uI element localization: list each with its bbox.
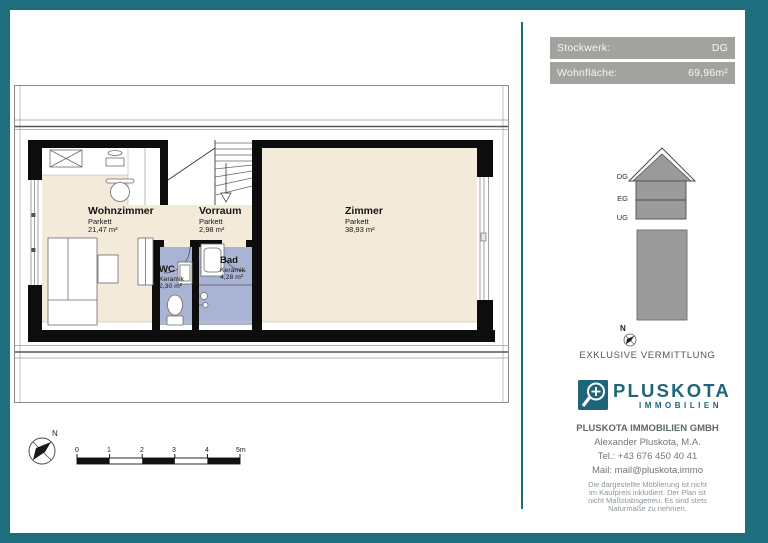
tagline: EXKLUSIVE VERMITTLUNG: [540, 350, 755, 361]
scale-tick: 4: [205, 447, 209, 454]
room-area: 38,93 m²: [345, 226, 383, 234]
contact-email: Mail: mail@pluskota.immo: [540, 464, 755, 478]
sofa: [48, 238, 97, 325]
room-label-zimmer: Zimmer Parkett 38,93 m²: [345, 206, 383, 235]
level-label-dg: DG: [617, 172, 628, 181]
building-footprint: [637, 230, 687, 320]
toilet: [167, 295, 183, 325]
cabinet: [138, 238, 153, 285]
floor-stairwell: [168, 140, 252, 205]
contact-person: Alexander Pluskota, M.A.: [540, 436, 755, 450]
stockwerk-label: Stockwerk:: [557, 42, 610, 54]
building-section-diagram: DG EG UG N: [598, 143, 708, 351]
scale-tick: 1: [107, 447, 111, 454]
wardrobe-crossed: [50, 150, 82, 167]
wohnflaeche-label: Wohnfläche:: [557, 67, 617, 79]
frame-top: [0, 0, 768, 10]
level-label-eg: EG: [617, 194, 628, 203]
contact-block: PLUSKOTA IMMOBILIEN GMBH Alexander Plusk…: [540, 422, 755, 478]
roof-inner: [633, 154, 691, 181]
scale-tick: 5m: [236, 447, 246, 454]
floorplan-page: { "colors": { "frame_teal": "#1E6F7E", "…: [0, 0, 768, 543]
info-box-stockwerk: Stockwerk: DG: [550, 37, 735, 59]
scale-tick: 0: [75, 447, 79, 454]
coffee-table: [98, 255, 118, 283]
logo-wordmark: PLUSKOTA: [613, 380, 725, 402]
room-name: Vorraum: [199, 206, 241, 218]
scale-tick: 3: [172, 447, 176, 454]
frame-bottom: [0, 533, 768, 543]
mini-compass-north-label: N: [620, 324, 626, 333]
stockwerk-value: DG: [712, 42, 728, 54]
room-area: 4,28 m²: [220, 274, 245, 282]
floor-zimmer: [262, 148, 477, 322]
room-name: Wohnzimmer: [88, 206, 154, 218]
room-label-vorraum: Vorraum Parkett 2,98 m²: [199, 206, 241, 235]
contact-phone: Tel.: +43 676 450 40 41: [540, 450, 755, 464]
scale-bar: 0 1 2 3 4 5m: [60, 440, 255, 470]
content-divider: [521, 22, 523, 509]
mini-compass-icon: N: [620, 324, 636, 346]
company-name: PLUSKOTA IMMOBILIEN GMBH: [540, 422, 755, 436]
disclaimer-line: Naturmaße zu nehmen.: [540, 505, 755, 513]
desk: [106, 151, 124, 167]
room-name: Bad: [220, 256, 245, 267]
frame-left: [0, 0, 10, 543]
level-label-ug: UG: [617, 213, 628, 222]
pluskota-logo-icon: [577, 379, 610, 412]
logo-subtitle: IMMOBILIEN: [613, 401, 722, 410]
room-area: 21,47 m²: [88, 226, 154, 234]
room-name: WC: [159, 265, 184, 276]
room-label-wohnzimmer: Wohnzimmer Parkett 21,47 m²: [88, 206, 154, 235]
scale-tick: 2: [140, 447, 144, 454]
disclaimer: Die dargestellte Möblierung ist nicht im…: [540, 481, 755, 513]
wohnflaeche-value: 69,96m²: [688, 67, 728, 79]
room-name: Zimmer: [345, 206, 383, 218]
floorplan-drawing: [14, 85, 509, 403]
room-floor-type: Keramik: [220, 267, 245, 275]
compass-north-label: N: [52, 429, 58, 438]
room-area: 2,98 m²: [199, 226, 241, 234]
room-floor-type: Keramik: [159, 276, 184, 284]
info-box-wohnflaeche: Wohnfläche: 69,96m²: [550, 62, 735, 84]
room-label-wc: WC Keramik 2,30 m²: [159, 265, 184, 291]
room-area: 2,30 m²: [159, 283, 184, 291]
room-label-bad: Bad Keramik 4,28 m²: [220, 256, 245, 282]
